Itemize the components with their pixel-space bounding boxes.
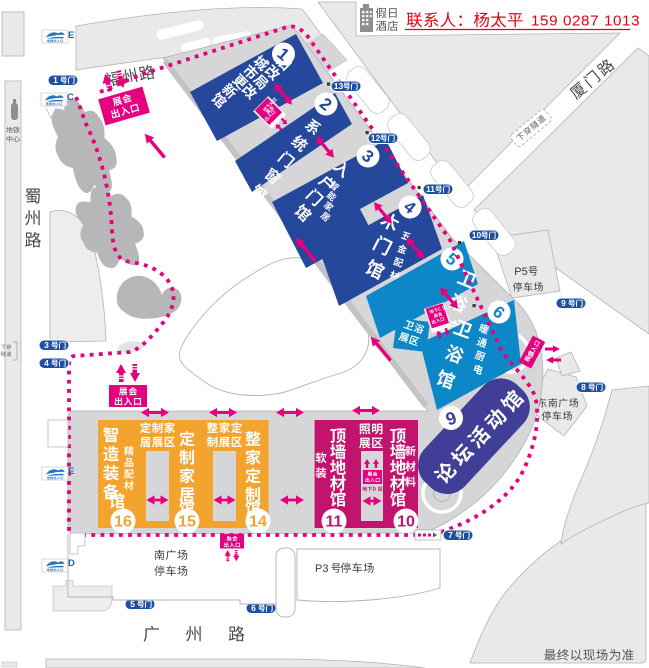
svg-text:P5: P5 (514, 266, 527, 278)
svg-text:1: 1 (53, 75, 58, 85)
svg-text:C: C (67, 92, 74, 103)
svg-text:E: E (68, 30, 74, 41)
svg-text:3: 3 (44, 340, 49, 350)
svg-text:15: 15 (178, 514, 196, 531)
svg-text:D: D (68, 558, 75, 569)
svg-text:10: 10 (397, 514, 415, 531)
svg-text:13: 13 (334, 81, 344, 91)
svg-text:5: 5 (130, 599, 135, 609)
svg-text:14: 14 (249, 514, 267, 531)
svg-text:11: 11 (426, 184, 435, 194)
svg-text:E: E (68, 466, 74, 477)
svg-text:6: 6 (251, 603, 256, 613)
svg-text:4: 4 (44, 358, 49, 368)
svg-text:P3: P3 (315, 563, 328, 575)
svg-text:11: 11 (326, 514, 343, 531)
svg-text:7: 7 (448, 530, 453, 540)
svg-text:9: 9 (561, 298, 566, 308)
svg-text:10: 10 (472, 230, 482, 240)
svg-text:8: 8 (581, 382, 586, 392)
svg-text:16: 16 (114, 514, 132, 531)
svg-text:159 0287 1013: 159 0287 1013 (531, 13, 640, 30)
svg-text:12: 12 (371, 133, 381, 143)
